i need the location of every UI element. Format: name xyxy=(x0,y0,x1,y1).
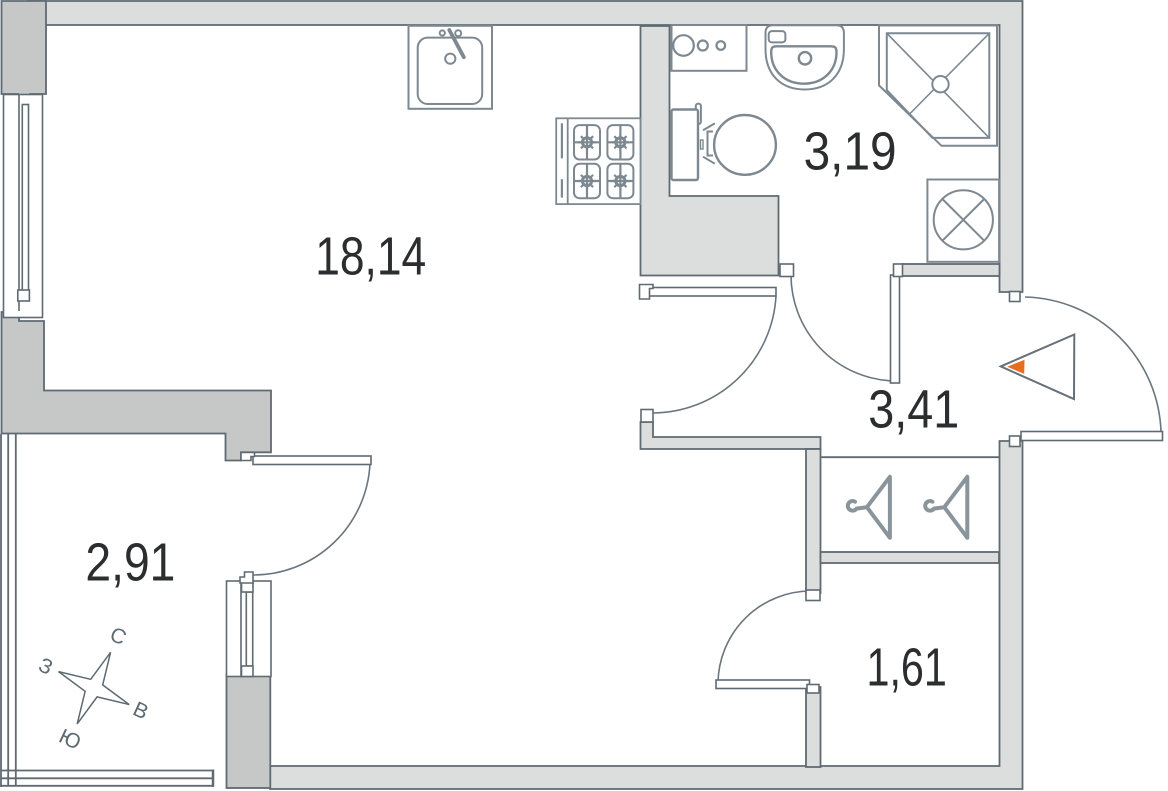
svg-text:3,41: 3,41 xyxy=(868,381,959,440)
svg-text:18,14: 18,14 xyxy=(315,228,426,287)
svg-text:3,19: 3,19 xyxy=(804,123,897,182)
svg-text:С: С xyxy=(106,623,129,650)
svg-text:1,61: 1,61 xyxy=(866,639,947,698)
svg-text:З: З xyxy=(35,654,56,680)
svg-text:2,91: 2,91 xyxy=(85,534,175,593)
svg-text:Ю: Ю xyxy=(55,725,84,755)
svg-text:В: В xyxy=(129,698,151,725)
